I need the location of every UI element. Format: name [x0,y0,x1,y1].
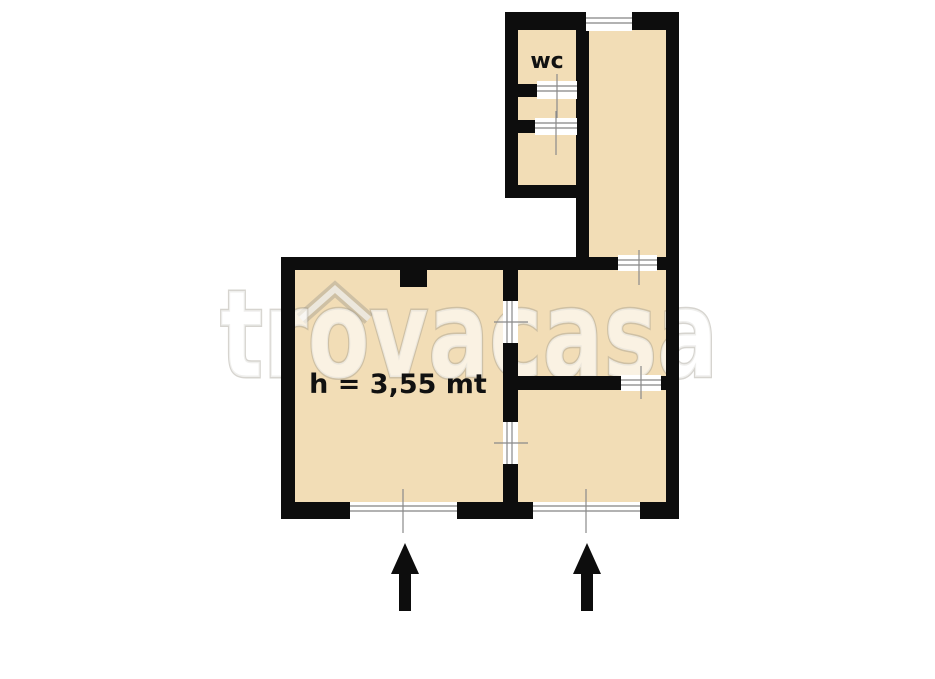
door-corridor [618,255,657,271]
floor-plan-canvas: trovacasa [0,0,935,679]
wall-left-outer [281,257,295,519]
room-corridor [576,12,679,270]
wall-bottom-right [640,502,679,519]
wall-wc-left [505,12,518,198]
wall-wc-corridor-divider [576,30,589,270]
ceiling-height-label: h = 3,55 mt [309,369,487,400]
wall-right-rooms-divider [503,376,621,390]
window-top [586,10,632,31]
floor-plan-page: trovacasa [0,0,935,679]
wall-bottom-left [281,502,350,519]
wall-wc-bottom [505,185,583,198]
wall-main-top-right-stub [657,257,679,270]
wall-chimney-stub [400,257,427,287]
wall-divider-upper [503,257,518,301]
wall-right-rooms-divider-stub [661,376,679,390]
wall-main-top [281,257,618,270]
wc-label: wc [530,49,563,74]
wall-divider-lower [503,464,518,503]
wall-bottom-middle [457,502,533,519]
wall-wc-inner-2 [505,120,535,133]
wall-wc-inner-1 [505,84,537,97]
